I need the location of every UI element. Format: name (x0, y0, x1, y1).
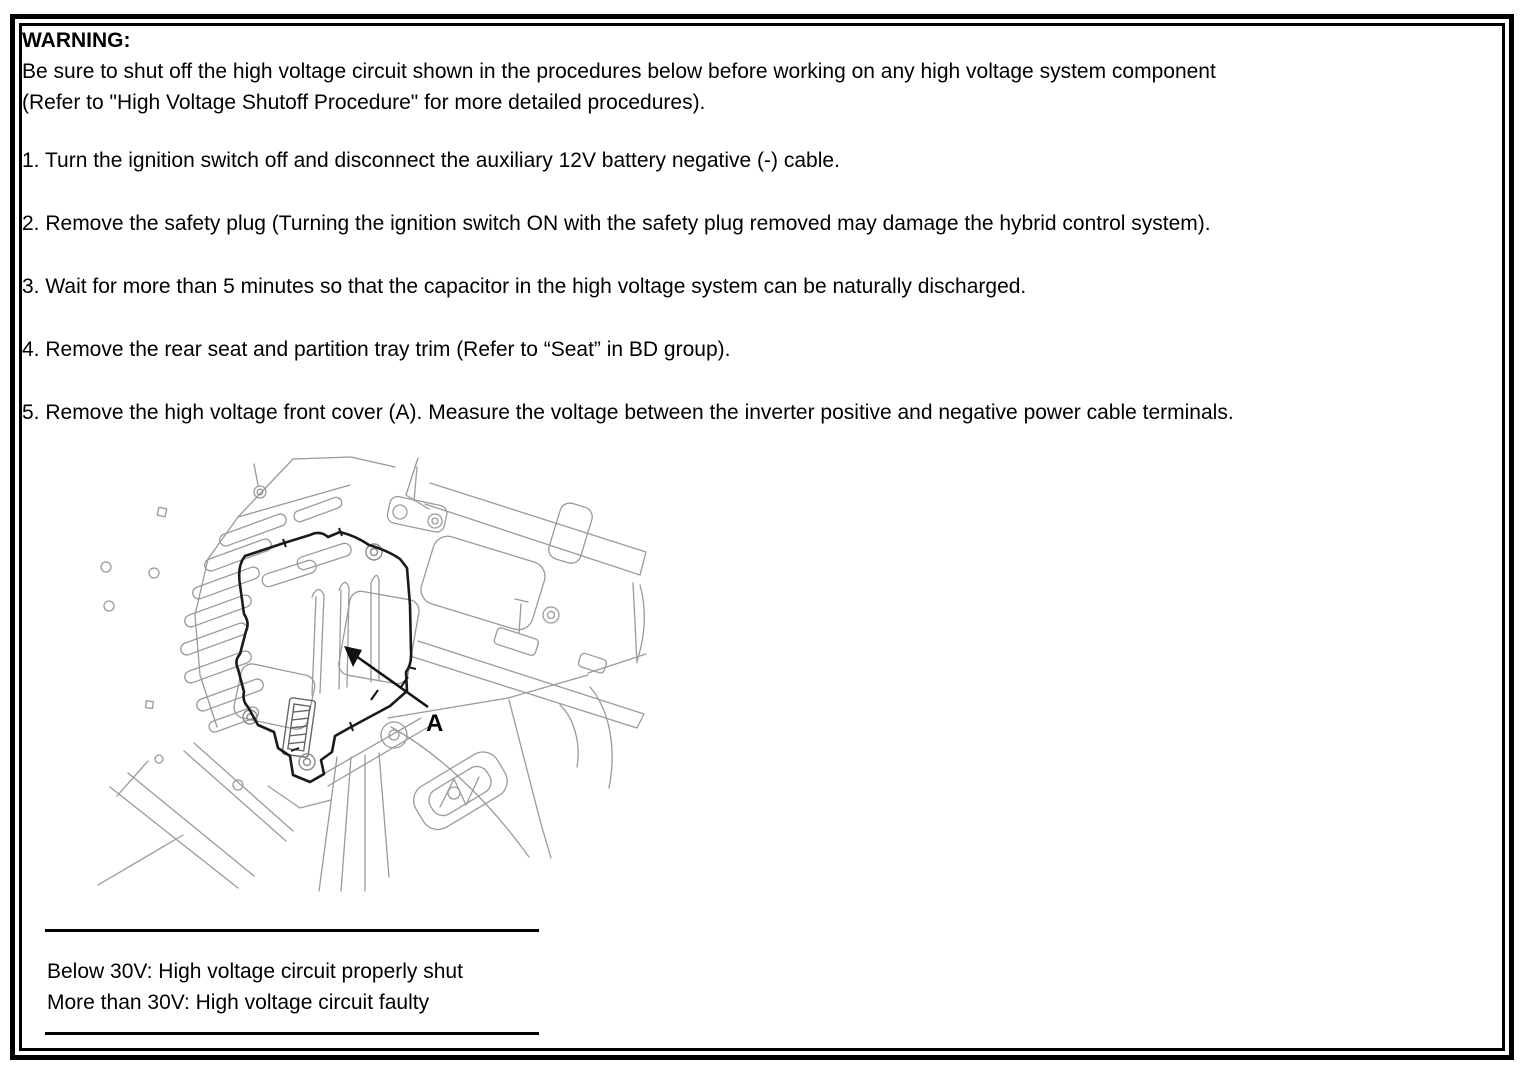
figure-high-voltage-front-cover: A (88, 455, 648, 895)
procedure-step-2: 2. Remove the safety plug (Turning the i… (22, 208, 1500, 239)
procedure-step-4: 4. Remove the rear seat and partition tr… (22, 334, 1500, 365)
warning-body-line2: (Refer to "High Voltage Shutoff Procedur… (22, 87, 1500, 118)
note-line-more-than-30v: More than 30V: High voltage circuit faul… (47, 987, 539, 1018)
warning-section: WARNING: Be sure to shut off the high vo… (22, 25, 1500, 428)
figure-line-art: A (88, 455, 648, 895)
procedure-step-1: 1. Turn the ignition switch off and disc… (22, 145, 1500, 176)
procedure-step-5: 5. Remove the high voltage front cover (… (22, 397, 1500, 428)
voltage-note-box: Below 30V: High voltage circuit properly… (45, 929, 539, 1035)
manual-page: WARNING: Be sure to shut off the high vo… (0, 0, 1526, 1070)
note-bottom-rule (45, 1032, 539, 1035)
figure-callout-label: A (426, 710, 443, 737)
warning-title: WARNING: (22, 25, 1500, 56)
procedure-step-3: 3. Wait for more than 5 minutes so that … (22, 271, 1500, 302)
warning-body-line1: Be sure to shut off the high voltage cir… (22, 56, 1500, 87)
note-line-below-30v: Below 30V: High voltage circuit properly… (47, 956, 539, 987)
